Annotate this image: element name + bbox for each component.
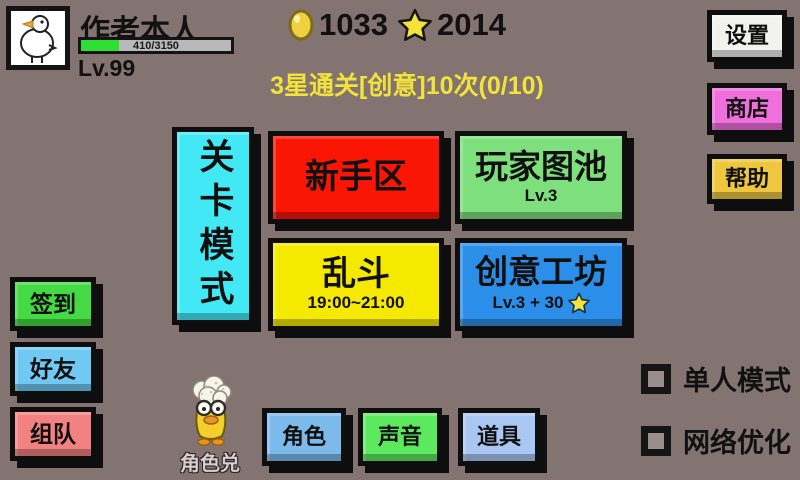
star-icon — [398, 8, 432, 42]
brawl-label: 乱斗 — [322, 257, 390, 293]
shop-label: 商店 — [725, 97, 769, 120]
team-button[interactable]: 组队 — [10, 407, 96, 461]
help-button[interactable]: 帮助 — [707, 154, 787, 204]
duck-mascot-icon — [178, 376, 242, 446]
single-player-label: 单人模式 — [683, 359, 791, 398]
xp-text: 410/3150 — [81, 40, 231, 51]
level-mode-button[interactable]: 关卡模式 — [172, 127, 254, 325]
sound-button[interactable]: 声音 — [358, 408, 442, 466]
coin-icon — [288, 9, 314, 41]
character-exchange-button[interactable]: 角色兑换 — [172, 376, 248, 480]
xp-bar: 410/3150 — [78, 37, 234, 54]
currency-bar: 1033 2014 — [288, 7, 506, 43]
player-map-pool-button[interactable]: 玩家图池 Lv.3 — [455, 131, 627, 224]
settings-label: 设置 — [725, 24, 769, 47]
network-optimization-checkbox[interactable] — [641, 426, 671, 456]
creative-workshop-level: Lv.3 + 30 — [492, 294, 563, 312]
daily-mission-text: 3星通关[创意]10次(0/10) — [157, 66, 657, 102]
player-avatar[interactable] — [6, 6, 70, 70]
character-button[interactable]: 角色 — [262, 408, 346, 466]
workshop-star-icon — [568, 292, 590, 314]
player-level: Lv.99 — [78, 55, 135, 82]
brawl-schedule: 19:00~21:00 — [308, 294, 405, 312]
items-label: 道具 — [477, 425, 521, 448]
single-player-checkbox[interactable] — [641, 364, 671, 394]
character-exchange-label: 角色兑换 — [172, 447, 248, 480]
creative-workshop-label: 创意工坊 — [475, 255, 607, 290]
network-optimization-option[interactable]: 网络优化 — [641, 421, 791, 460]
player-map-pool-label: 玩家图池 — [475, 150, 607, 185]
sign-in-button[interactable]: 签到 — [10, 277, 96, 331]
sound-label: 声音 — [378, 425, 422, 448]
settings-button[interactable]: 设置 — [707, 10, 787, 62]
shop-button[interactable]: 商店 — [707, 83, 787, 135]
level-mode-label: 关卡模式 — [195, 138, 232, 314]
character-label: 角色 — [282, 425, 326, 448]
friends-label: 好友 — [30, 357, 76, 381]
items-button[interactable]: 道具 — [458, 408, 540, 466]
sign-in-label: 签到 — [30, 292, 76, 316]
game-main-menu: { "player": { "name": "作者本人", "level": "… — [0, 0, 800, 480]
coin-count: 1033 — [319, 7, 388, 43]
friends-button[interactable]: 好友 — [10, 342, 96, 396]
coin-counter: 1033 — [288, 7, 388, 43]
brawl-button[interactable]: 乱斗 19:00~21:00 — [268, 238, 444, 331]
creative-workshop-button[interactable]: 创意工坊 Lv.3 + 30 — [455, 238, 627, 331]
star-counter: 2014 — [398, 7, 506, 43]
newbie-area-label: 新手区 — [305, 160, 407, 196]
goose-avatar-icon — [11, 11, 63, 63]
newbie-area-button[interactable]: 新手区 — [268, 131, 444, 224]
team-label: 组队 — [30, 422, 76, 446]
help-label: 帮助 — [725, 167, 769, 190]
single-player-mode-option[interactable]: 单人模式 — [641, 359, 791, 398]
star-count: 2014 — [437, 7, 506, 43]
network-optimization-label: 网络优化 — [683, 421, 791, 460]
player-map-pool-level: Lv.3 — [525, 187, 558, 205]
